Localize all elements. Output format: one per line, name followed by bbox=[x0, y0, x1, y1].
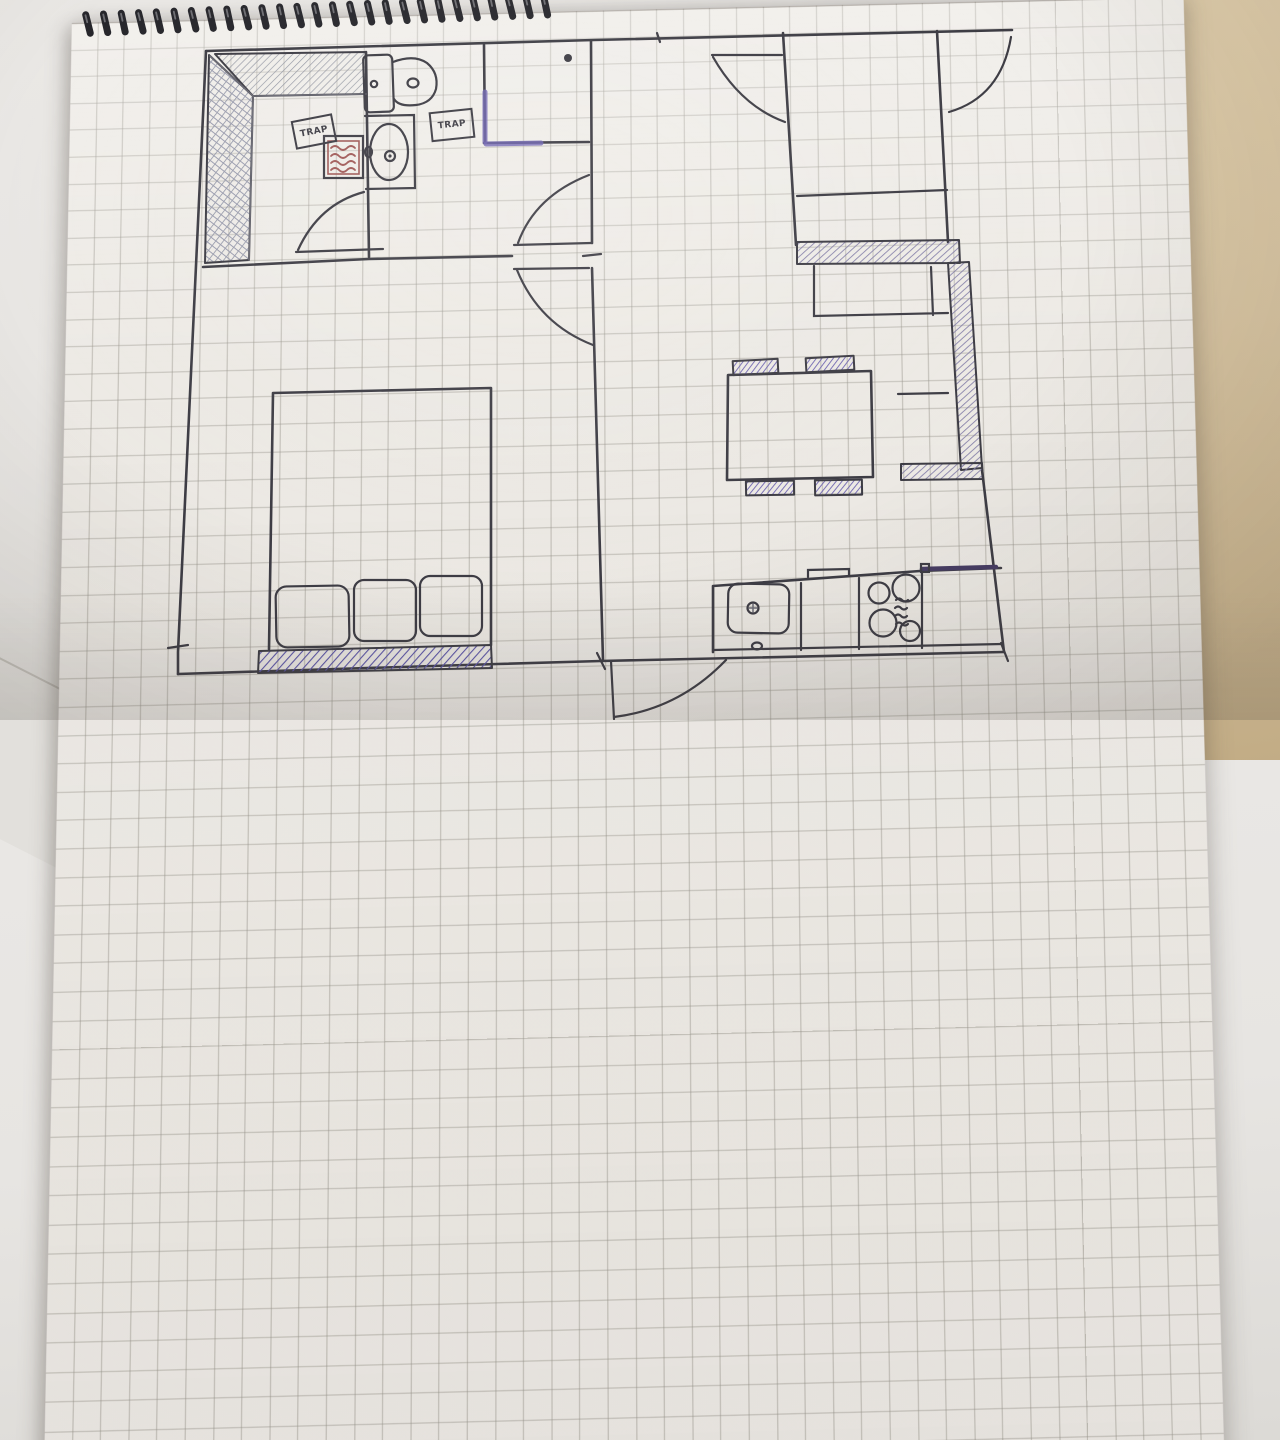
wall-center-lower bbox=[592, 268, 603, 660]
binding-ring bbox=[345, 0, 358, 27]
chair-top-right bbox=[806, 356, 855, 372]
closet-marks bbox=[485, 54, 572, 144]
binding-ring bbox=[81, 11, 94, 38]
hob-burner-1 bbox=[869, 583, 890, 604]
binding-ring bbox=[398, 0, 411, 25]
window-mark-dark bbox=[922, 567, 996, 569]
binding-ring bbox=[416, 0, 429, 24]
hall-door-arc-lower bbox=[517, 270, 593, 345]
hall-door-leaf-lower bbox=[514, 268, 589, 269]
binding-ring bbox=[451, 0, 464, 23]
bed-pillow-1 bbox=[275, 585, 349, 647]
toilet-bowl bbox=[393, 58, 437, 105]
hall-door-arc-upper bbox=[518, 175, 589, 243]
binding-ring bbox=[99, 10, 112, 37]
kitchen-hatched-wall-right bbox=[948, 262, 982, 470]
spiral-binding bbox=[0, 0, 1280, 60]
trap-label-toilet-room-text: TRAP bbox=[437, 119, 466, 132]
balcony-door-leaf bbox=[611, 661, 614, 719]
wall-center-upper bbox=[591, 41, 592, 243]
binding-ring bbox=[434, 0, 446, 23]
wall-right-upper bbox=[937, 31, 948, 242]
chair-top-left bbox=[733, 359, 779, 375]
toilet-flush-button bbox=[371, 81, 377, 87]
dining-set bbox=[727, 356, 873, 496]
binding-ring bbox=[487, 0, 499, 21]
kitchen-counter-bottom bbox=[713, 564, 1002, 652]
toilet bbox=[363, 54, 437, 112]
binding-ring bbox=[469, 0, 482, 22]
hall-door-leaf-upper bbox=[514, 243, 591, 245]
washbasin-drain-dot bbox=[388, 154, 391, 157]
binding-ring bbox=[117, 9, 129, 36]
entry-hatched-wall bbox=[797, 240, 960, 264]
purple-corner-horizontal bbox=[486, 143, 541, 144]
binding-ring bbox=[328, 1, 340, 28]
hob-burner-3 bbox=[870, 610, 897, 637]
binding-ring bbox=[170, 7, 182, 34]
bed-outline bbox=[269, 388, 491, 649]
binding-ring bbox=[310, 1, 323, 28]
binding-ring bbox=[381, 0, 393, 25]
radiator-wave-1 bbox=[331, 146, 355, 150]
bedroom-bed bbox=[258, 388, 492, 673]
radiator-wave-2 bbox=[331, 154, 355, 158]
radiator-wave-3 bbox=[331, 161, 355, 165]
hob-burner-2 bbox=[893, 575, 920, 602]
tick-door-junction bbox=[583, 254, 601, 256]
binding-ring bbox=[293, 2, 306, 29]
wardrobe-line bbox=[797, 190, 947, 196]
binding-ring bbox=[522, 0, 535, 20]
binding-ring bbox=[152, 8, 165, 35]
dining-table bbox=[727, 371, 873, 480]
bed-pillow-3 bbox=[420, 576, 482, 636]
bed-pillow-2 bbox=[354, 580, 416, 641]
kitchen-counter-box bbox=[814, 266, 948, 316]
binding-ring bbox=[240, 4, 253, 31]
binding-ring bbox=[258, 4, 271, 31]
chair-bottom-left bbox=[746, 481, 794, 496]
toilet-bowl-drain bbox=[408, 79, 419, 88]
binding-ring bbox=[223, 5, 235, 32]
kitchen-hatched-wall-bottom bbox=[901, 463, 983, 480]
wall-bottom-right bbox=[601, 652, 1004, 661]
trap-label-toilet-room: TRAP bbox=[429, 108, 476, 142]
chair-bottom-right bbox=[815, 480, 862, 496]
wall-left bbox=[178, 51, 206, 674]
binding-ring bbox=[134, 8, 147, 35]
wall-right-lower bbox=[982, 470, 1004, 652]
bed-headboard-hatch bbox=[258, 645, 492, 673]
trap-label-bathroom-text: TRAP bbox=[299, 124, 329, 139]
counter-outline bbox=[713, 568, 1001, 652]
kitchen-sink-tap bbox=[752, 643, 762, 650]
kitchen-sink-drain-cross bbox=[749, 604, 757, 612]
tick-bottom-left bbox=[168, 645, 188, 648]
binding-ring bbox=[275, 3, 287, 30]
wall-entry-left bbox=[783, 33, 796, 245]
binding-ring bbox=[504, 0, 517, 21]
kitchen-shelf-line bbox=[898, 393, 948, 394]
floor-plan-drawing bbox=[0, 0, 1280, 720]
bathroom-door-arc bbox=[298, 192, 364, 250]
radiator-wave-4 bbox=[331, 168, 355, 172]
binding-ring bbox=[363, 0, 376, 26]
washbasin bbox=[365, 115, 415, 189]
livingroom-door-arc bbox=[713, 57, 785, 122]
balcony-door-arc bbox=[614, 660, 726, 717]
binding-ring bbox=[187, 6, 200, 33]
binding-ring bbox=[205, 6, 218, 33]
spiral-binding-rings bbox=[81, 0, 551, 37]
